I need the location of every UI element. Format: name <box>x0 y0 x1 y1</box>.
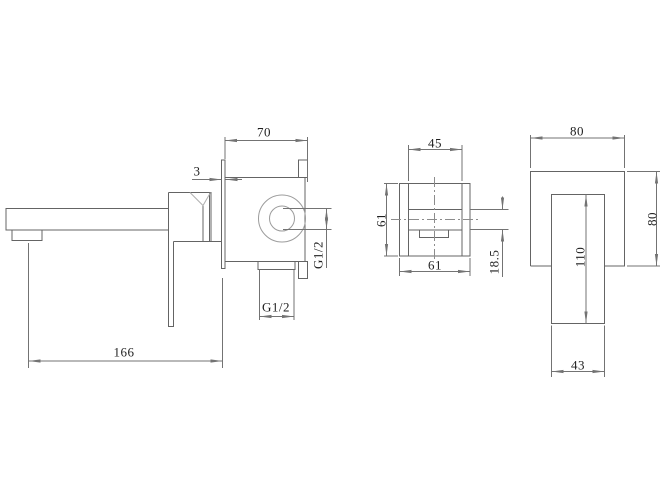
dim-label-plate-thickness: 3 <box>194 164 201 177</box>
dim-label-body-width: 61 <box>428 258 442 271</box>
dim-70-extension-lines <box>225 137 308 182</box>
valve-body-side <box>225 178 305 262</box>
mounting-tab-top <box>299 160 308 178</box>
lever-outline <box>169 193 222 327</box>
dim-label-plate-height: 80 <box>646 212 659 226</box>
aerator-outline <box>12 230 42 241</box>
spout-outline <box>6 209 169 231</box>
outlet-port-outer-circle <box>259 195 306 242</box>
dim-label-cartridge-width: 45 <box>428 137 442 150</box>
dim-label-body-height: 61 <box>374 213 387 227</box>
wall-plate-side <box>222 160 226 269</box>
dim-label-plate-width: 80 <box>570 124 584 137</box>
dim-18-5-extension-lines <box>470 210 509 230</box>
inlet-port-outline <box>258 262 295 270</box>
dim-label-body-depth: 70 <box>257 126 271 139</box>
dim-label-spout-projection: 166 <box>114 346 135 359</box>
mounting-tab-bottom <box>299 262 308 279</box>
dim-80-top-extension-lines <box>531 135 625 168</box>
drawing-canvas: 70 3 G1/2 G1/2 166 45 61 61 18.5 80 80 1… <box>0 0 668 500</box>
dim-label-lever-length: 110 <box>573 247 586 268</box>
technical-drawing <box>0 0 668 500</box>
outlet-port-inner-circle <box>270 206 295 231</box>
lever-cone-detail <box>190 193 211 206</box>
side-view <box>6 137 332 368</box>
front-view-plate <box>531 135 661 377</box>
dim-label-inlet-connection: G1/2 <box>262 301 290 314</box>
dim-label-outlet-connection: G1/2 <box>312 241 325 269</box>
dim-label-port-offset: 18.5 <box>488 250 501 275</box>
dim-label-lever-width: 43 <box>571 359 585 372</box>
